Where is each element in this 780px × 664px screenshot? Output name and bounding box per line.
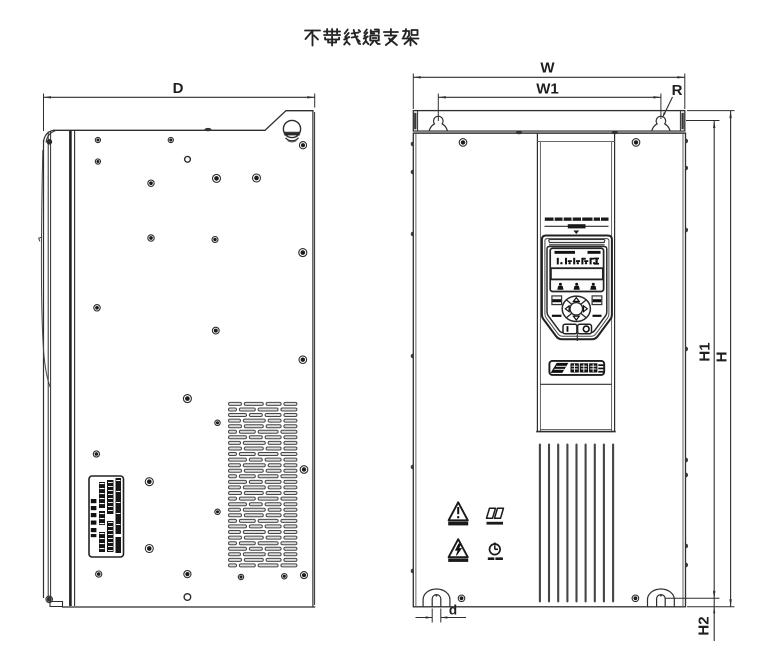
- svg-text:W1: W1: [536, 81, 559, 98]
- svg-text:D: D: [173, 80, 184, 97]
- svg-text:H2: H2: [696, 616, 713, 635]
- svg-text:W: W: [540, 60, 555, 77]
- svg-text:R: R: [672, 82, 683, 99]
- svg-text:H1: H1: [697, 342, 714, 361]
- svg-text:d: d: [449, 603, 457, 618]
- svg-text:H: H: [714, 352, 731, 363]
